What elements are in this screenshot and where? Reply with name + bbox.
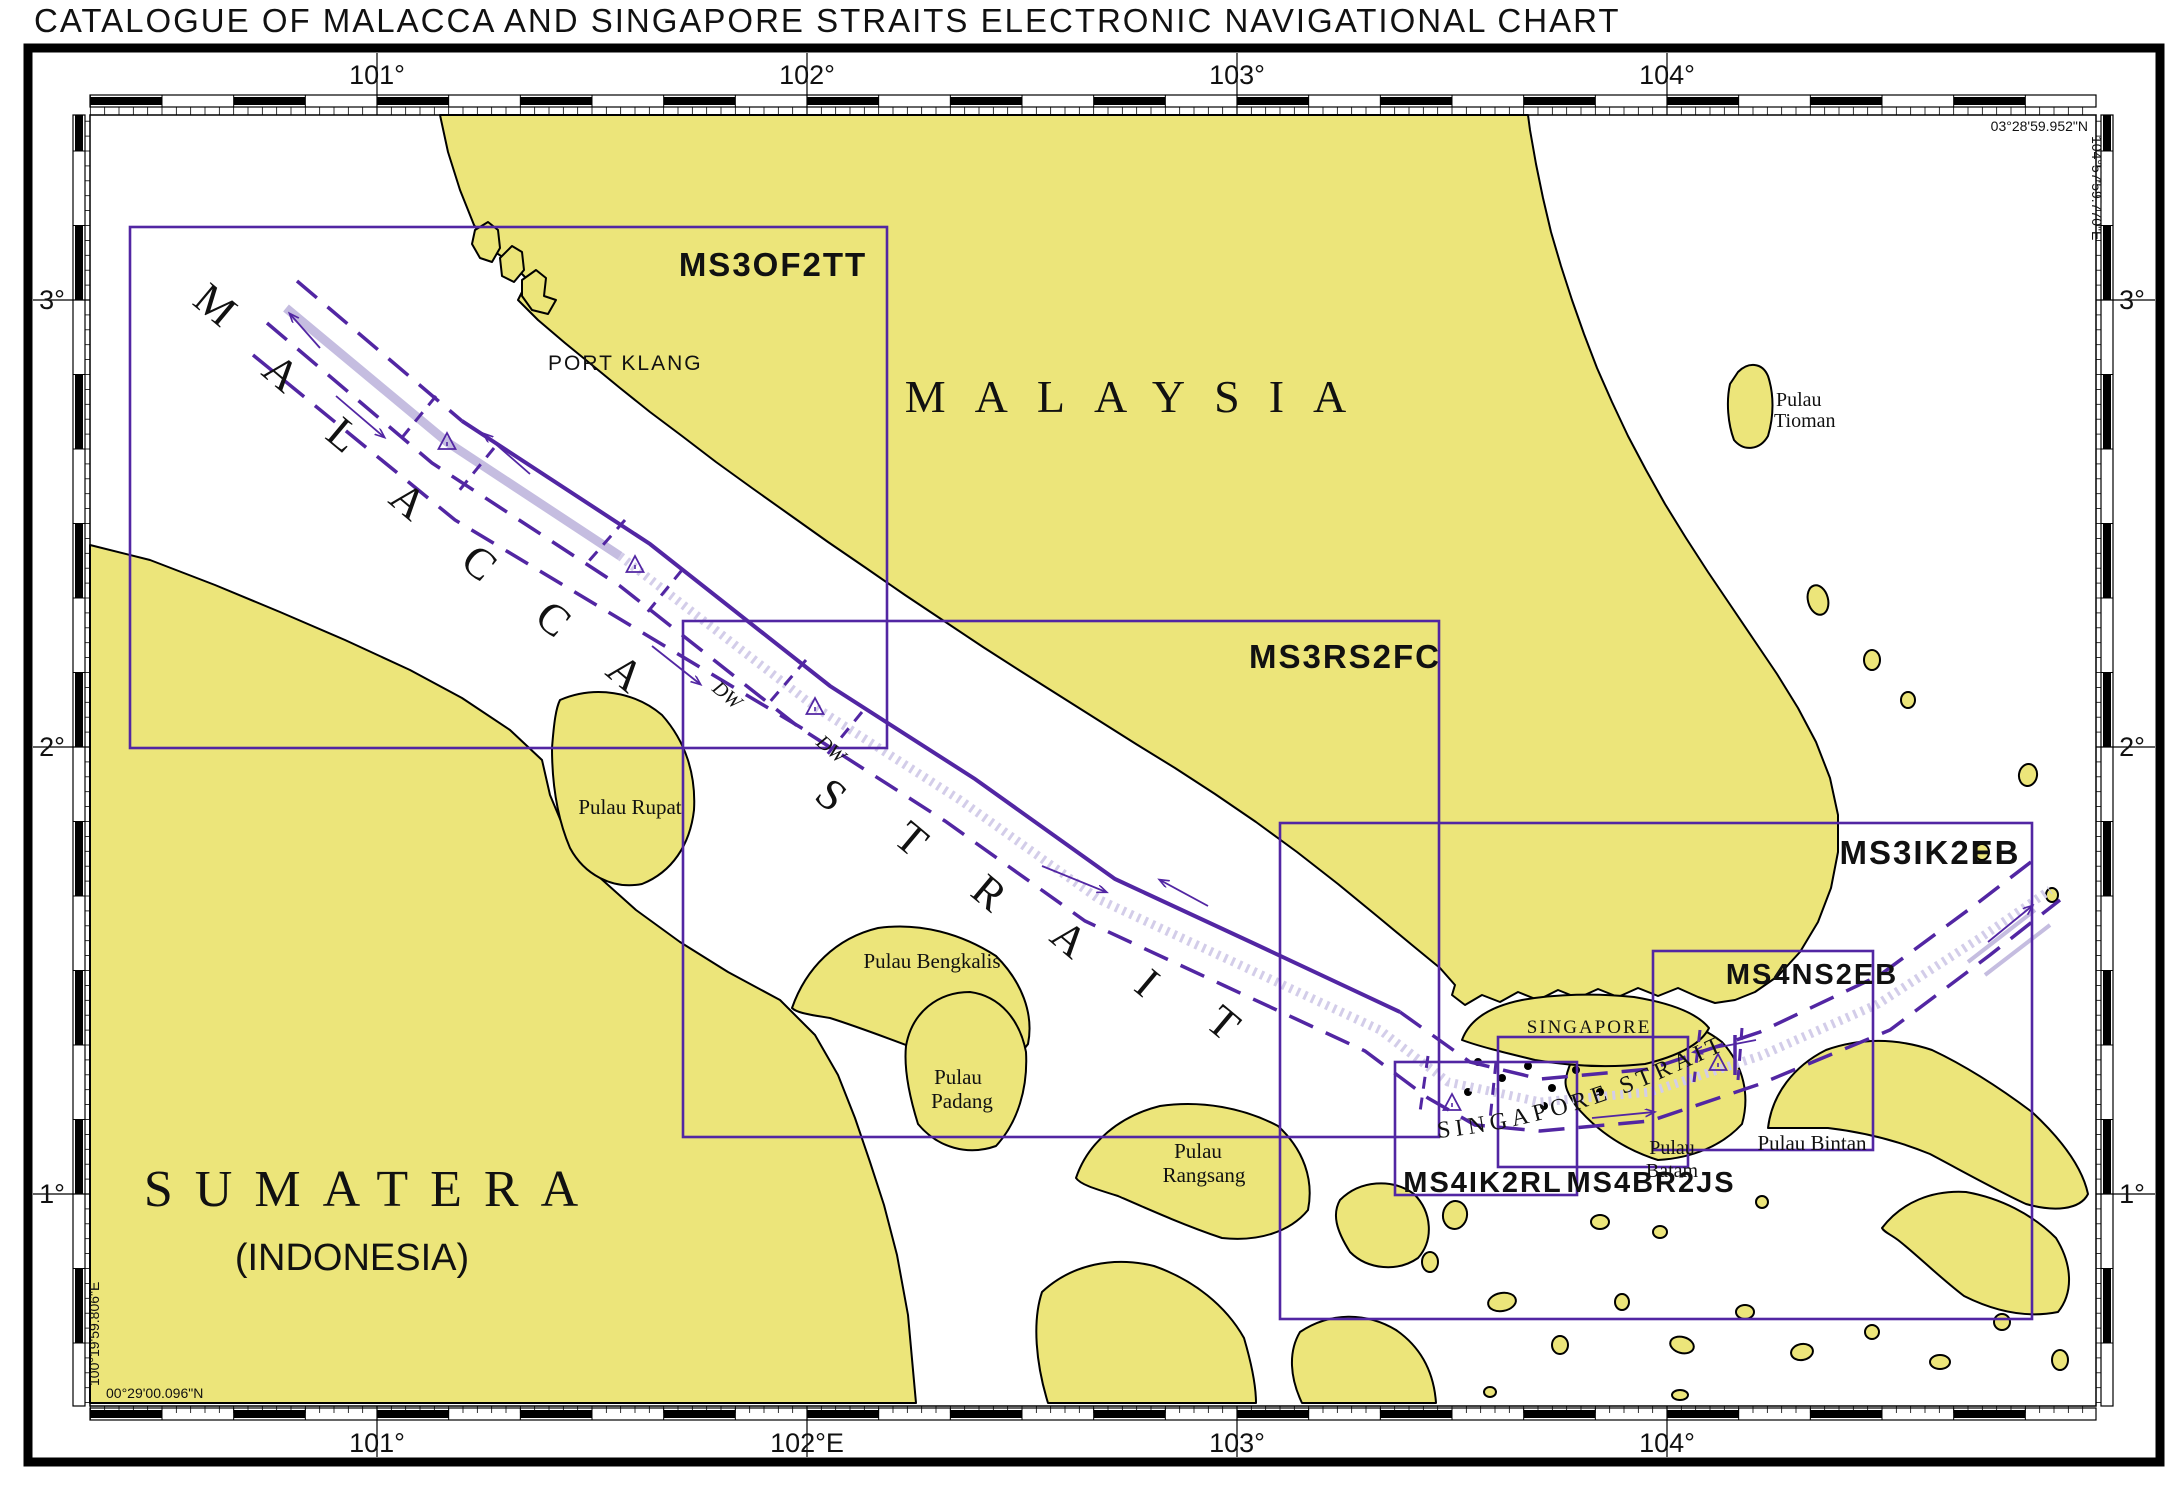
- right-axis-label: 2°: [2119, 732, 2145, 762]
- bottom-axis-label: 103°: [1209, 1428, 1265, 1458]
- label-singapore: SINGAPORE: [1527, 1017, 1652, 1038]
- right-axis-label: 1°: [2119, 1179, 2145, 1209]
- land-islet: [1484, 1387, 1496, 1397]
- degree-bar: [1667, 97, 1739, 105]
- label-pulau-tioman-line1: Pulau: [1776, 389, 1822, 411]
- degree-bar: [377, 1410, 449, 1418]
- label-port-klang: PORT KLANG: [548, 352, 703, 375]
- land-islet: [1422, 1252, 1438, 1272]
- land-islet: [1552, 1336, 1568, 1354]
- degree-bar: [1237, 1410, 1309, 1418]
- left-axis-label: 1°: [39, 1179, 65, 1209]
- label-pulau-batam-line2: Batam: [1646, 1160, 1699, 1182]
- degree-bar: [75, 226, 83, 301]
- degree-bar: [75, 524, 83, 599]
- right-band: [2101, 115, 2113, 1406]
- land-pulau-tioman: [1728, 365, 1773, 448]
- land-islet: [2052, 1350, 2068, 1370]
- degree-bar: [1954, 1410, 2026, 1418]
- degree-bar: [2103, 971, 2111, 1046]
- degree-bar: [1810, 1410, 1882, 1418]
- land-islet: [1615, 1294, 1629, 1310]
- degree-bar: [2103, 1269, 2111, 1344]
- bottom-axis-label: 101°: [349, 1428, 405, 1458]
- degree-bar: [75, 115, 83, 151]
- degree-bar: [520, 1410, 592, 1418]
- islet-rock: [1548, 1084, 1556, 1092]
- top-axis-label: 103°: [1209, 60, 1265, 90]
- degree-bar: [377, 97, 449, 105]
- bottom-axis-label: 102°E: [770, 1428, 844, 1458]
- catalogue-page: CATALOGUE OF MALACCA AND SINGAPORE STRAI…: [0, 0, 2184, 1506]
- label-pulau-padang-line1: Pulau: [934, 1065, 982, 1089]
- left-band: [73, 115, 85, 1406]
- label-sumatera: SUMATERA: [144, 1161, 600, 1218]
- enc-cell-label-MS3IK2EB: MS3IK2EB: [1839, 834, 2020, 871]
- top-axis-label: 101°: [349, 60, 405, 90]
- navigational-chart-map: 101°102°103°104°101°102°E103°104°3°2°1°3…: [0, 0, 2184, 1506]
- land-islet: [1653, 1226, 1667, 1238]
- degree-bar: [2103, 673, 2111, 748]
- degree-bar: [75, 1269, 83, 1344]
- degree-bar: [75, 822, 83, 897]
- land-islet: [1736, 1305, 1754, 1319]
- degree-bar: [2103, 822, 2111, 897]
- corner-coordinate-top-right-lon: 104°57'59.770"E: [2089, 136, 2105, 240]
- left-axis-label: 2°: [39, 732, 65, 762]
- land-islet: [1994, 1314, 2010, 1330]
- degree-bar: [1524, 97, 1596, 105]
- degree-bar: [664, 1410, 736, 1418]
- top-axis-label: 104°: [1639, 60, 1695, 90]
- degree-bar: [234, 97, 306, 105]
- degree-bar: [2103, 524, 2111, 599]
- degree-bar: [234, 1410, 306, 1418]
- corner-coordinate-top-right-lat: 03°28'59.952"N: [1991, 118, 2088, 134]
- label-pulau-bintan: Pulau Bintan: [1757, 1131, 1867, 1155]
- degree-bar: [950, 97, 1022, 105]
- enc-cell-label-MS3RS2FC: MS3RS2FC: [1249, 638, 1441, 675]
- degree-bar: [520, 97, 592, 105]
- degree-bar: [75, 673, 83, 748]
- label-pulau-rangsang-line1: Pulau: [1174, 1139, 1222, 1163]
- label-malaysia: MALAYSIA: [905, 371, 1376, 422]
- degree-bar: [1524, 1410, 1596, 1418]
- bottom-axis-label: 104°: [1639, 1428, 1695, 1458]
- label-pulau-rupat: Pulau Rupat: [578, 795, 681, 819]
- enc-cell-label-MS3OF2TT: MS3OF2TT: [679, 246, 867, 283]
- enc-cell-label-MS4IK2RL: MS4IK2RL: [1403, 1167, 1562, 1199]
- corner-coordinate-bottom-left-lon: 100°19'59.806"E: [86, 1282, 102, 1386]
- degree-bar: [950, 1410, 1022, 1418]
- label-pulau-rangsang-line2: Rangsang: [1163, 1163, 1246, 1187]
- land-islet: [2046, 888, 2058, 902]
- degree-bar: [90, 1410, 162, 1418]
- degree-bar: [664, 97, 736, 105]
- degree-bar: [75, 971, 83, 1046]
- degree-bar: [2103, 375, 2111, 450]
- degree-bar: [75, 1120, 83, 1195]
- land-islet: [1901, 692, 1915, 708]
- label-indonesia: (INDONESIA): [235, 1237, 469, 1279]
- degree-bar: [1954, 97, 2026, 105]
- degree-bar: [807, 97, 879, 105]
- degree-bar: [1380, 1410, 1452, 1418]
- label-pulau-padang-line2: Padang: [931, 1089, 993, 1113]
- right-axis-label: 3°: [2119, 285, 2145, 315]
- top-axis-label: 102°: [779, 60, 835, 90]
- left-axis-label: 3°: [39, 285, 65, 315]
- label-pulau-bengkalis: Pulau Bengkalis: [863, 949, 1000, 973]
- degree-bar: [1237, 97, 1309, 105]
- land-islet: [1865, 1325, 1879, 1339]
- land-islet: [1672, 1390, 1688, 1400]
- land-islet: [1756, 1196, 1768, 1208]
- land-islet: [1864, 650, 1880, 670]
- degree-bar: [1667, 1410, 1739, 1418]
- degree-bar: [2103, 1120, 2111, 1195]
- land-islet: [1930, 1355, 1950, 1369]
- degree-bar: [75, 375, 83, 450]
- degree-bar: [1810, 97, 1882, 105]
- degree-bar: [1380, 97, 1452, 105]
- degree-bar: [1094, 97, 1166, 105]
- degree-bar: [1094, 1410, 1166, 1418]
- land-islet: [1591, 1215, 1609, 1229]
- enc-cell-label-MS4NS2EB: MS4NS2EB: [1726, 959, 1898, 991]
- corner-coordinate-bottom-left-lat: 00°29'00.096"N: [106, 1385, 203, 1401]
- degree-bar: [807, 1410, 879, 1418]
- label-pulau-tioman-line2: Tioman: [1774, 410, 1836, 432]
- label-pulau-batam-line1: Pulau: [1649, 1137, 1695, 1159]
- degree-bar: [90, 97, 162, 105]
